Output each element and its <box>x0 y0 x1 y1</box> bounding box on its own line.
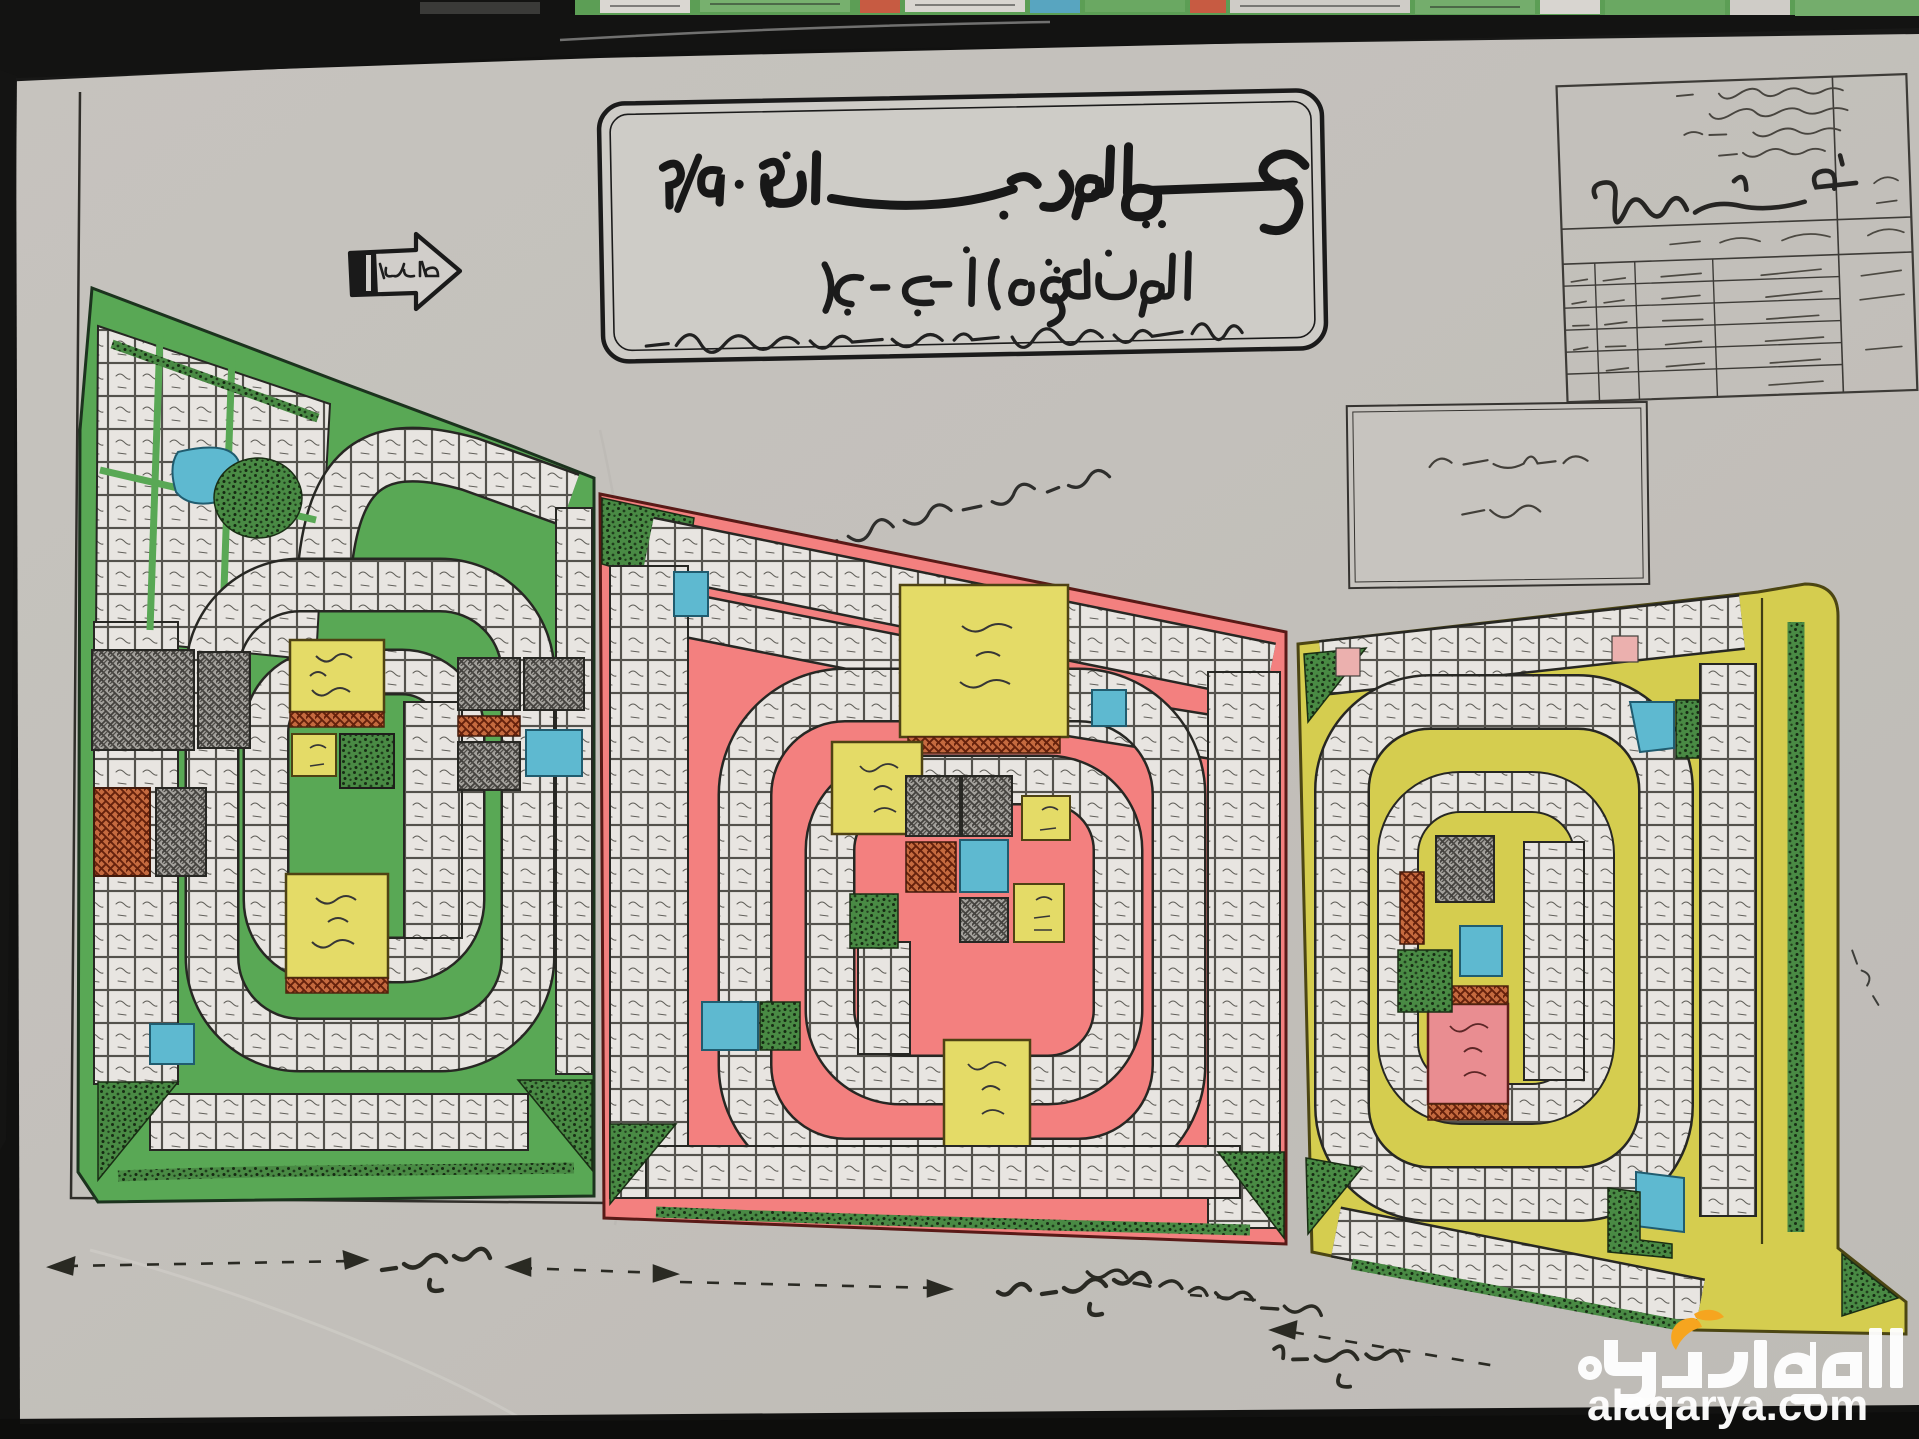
svg-text:alaqarya.com: alaqarya.com <box>1587 1381 1868 1430</box>
